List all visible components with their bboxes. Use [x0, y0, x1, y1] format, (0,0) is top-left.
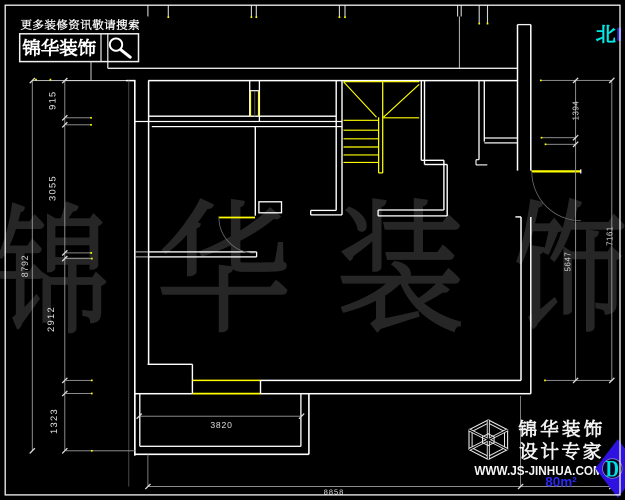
svg-text:2912: 2912 [46, 306, 56, 332]
svg-text:1394: 1394 [572, 101, 581, 121]
svg-text:WWW.JS-JINHUA.COM: WWW.JS-JINHUA.COM [474, 464, 603, 478]
svg-text:5647: 5647 [563, 252, 572, 272]
svg-text:80m²: 80m² [545, 475, 577, 490]
svg-text:3055: 3055 [47, 175, 57, 201]
svg-text:3820: 3820 [210, 420, 232, 430]
svg-text:915: 915 [47, 90, 57, 109]
svg-text:1323: 1323 [49, 408, 59, 434]
svg-text:7161: 7161 [605, 226, 614, 246]
svg-text:8792: 8792 [20, 255, 30, 277]
svg-text:D: D [606, 457, 620, 482]
